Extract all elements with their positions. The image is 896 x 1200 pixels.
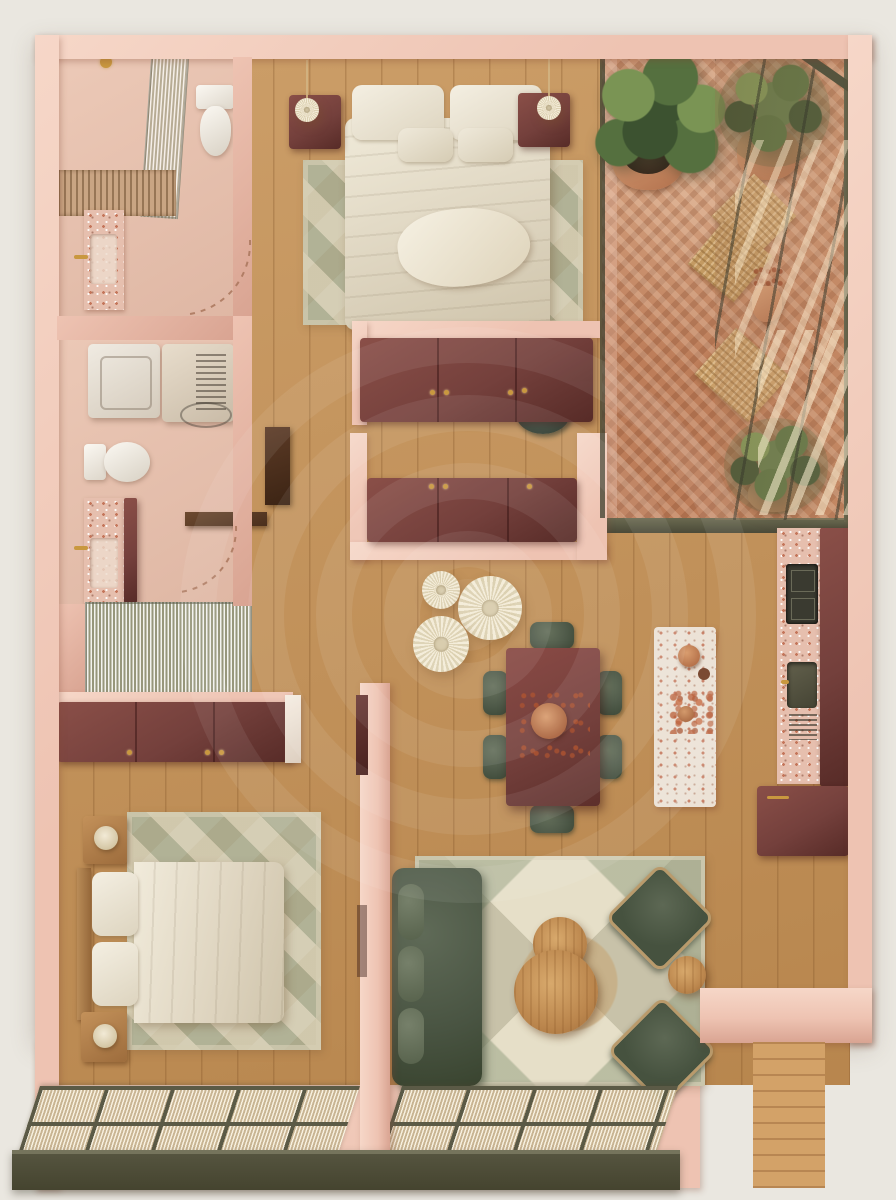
- bedroom2-overhead-cabinets: [57, 702, 293, 762]
- bedroom2-door-leaf: [356, 695, 368, 775]
- pendant-lamp-left: [295, 98, 319, 122]
- wardrobe-upper: [360, 338, 593, 422]
- kitchen-hob: [786, 564, 818, 624]
- wardrobe-top-back-wall: [352, 321, 600, 338]
- bed2-headboard: [77, 868, 91, 1020]
- facade-glass-left: [17, 1086, 360, 1156]
- sofa-bolster-3: [398, 1008, 424, 1064]
- bedroom2-cabinet-end-panel: [285, 695, 301, 763]
- washing-machine-lid: [100, 356, 152, 410]
- facade-sill: [12, 1150, 680, 1190]
- sofa-bolster-1: [398, 884, 424, 940]
- bed1-small-pillow-left: [398, 128, 453, 162]
- toilet-bowl-2: [104, 442, 150, 482]
- bed2-pillow-bottom: [92, 942, 138, 1006]
- table-centerpiece-bowl: [531, 703, 567, 739]
- vanity-2-side-cabinet: [124, 498, 137, 603]
- sunlight-streaks-lower: [758, 330, 858, 515]
- bed1-small-pillow-right: [458, 128, 513, 162]
- kitchen-sink: [787, 662, 817, 708]
- wall-top: [35, 35, 872, 59]
- wall-bathroom1-laundry: [57, 316, 233, 340]
- vanity-1-sink: [90, 234, 117, 284]
- entry-nook-wall: [700, 988, 872, 1043]
- sofa-bolster-2: [398, 946, 424, 1002]
- bed2-lamp-bottom: [93, 1024, 117, 1048]
- pendant-cord-right: [548, 58, 550, 100]
- dining-chair-right-1: [597, 671, 622, 715]
- wall-right: [848, 35, 872, 1043]
- vanity-2-sink: [90, 538, 118, 588]
- vanity-2-faucet: [74, 546, 88, 550]
- entry-deck: [753, 1042, 825, 1188]
- dining-chair-left-1: [483, 671, 508, 715]
- sideboard-wall-left: [350, 433, 367, 560]
- glass-wall-left-jamb: [57, 604, 85, 694]
- pendant-cord-left: [306, 60, 308, 102]
- pendant-lantern-large: [458, 576, 522, 640]
- kitchen-cabinet-front: [820, 528, 850, 786]
- dining-chair-bottom: [530, 805, 574, 833]
- bed2-pillow-top: [92, 872, 138, 936]
- dining-chair-left-2: [483, 735, 508, 779]
- wall-bathroom1-right: [233, 57, 252, 317]
- facade-glass-right: [379, 1086, 678, 1156]
- wall-left: [35, 35, 59, 1188]
- dining-chair-top: [530, 622, 574, 649]
- vanity-1-faucet: [74, 255, 88, 259]
- bed2-duvet: [134, 862, 284, 1023]
- island-vase: [678, 706, 694, 722]
- bed2-lamp-top: [94, 826, 118, 850]
- dining-chair-right-2: [597, 735, 622, 779]
- sideboard-lower: [367, 478, 577, 542]
- floor-plan-render: [0, 0, 896, 1200]
- laundry-unit-fan: [180, 402, 232, 428]
- wall-laundry-right: [233, 316, 252, 606]
- pendant-lamp-right: [537, 96, 561, 120]
- pendant-lantern-mid: [413, 616, 469, 672]
- sideboard-wall-bottom: [350, 542, 607, 560]
- island-bowl-small: [698, 668, 710, 680]
- kitchen-sink-faucet: [781, 680, 789, 684]
- kitchen-drying-rack: [789, 714, 817, 740]
- kitchen-base-cabinet: [757, 786, 849, 856]
- coffee-table-large: [514, 950, 598, 1034]
- partition-door-reveal: [357, 905, 367, 977]
- island-bowl-large: [678, 645, 700, 667]
- laundry-shower-glass-wall: [85, 602, 252, 696]
- toilet-bowl-1: [200, 106, 231, 156]
- toilet-tank-2: [84, 444, 106, 480]
- pendant-lantern-small: [422, 571, 460, 609]
- open-door-leaf: [265, 427, 290, 505]
- hall-wood-shelf: [185, 512, 267, 526]
